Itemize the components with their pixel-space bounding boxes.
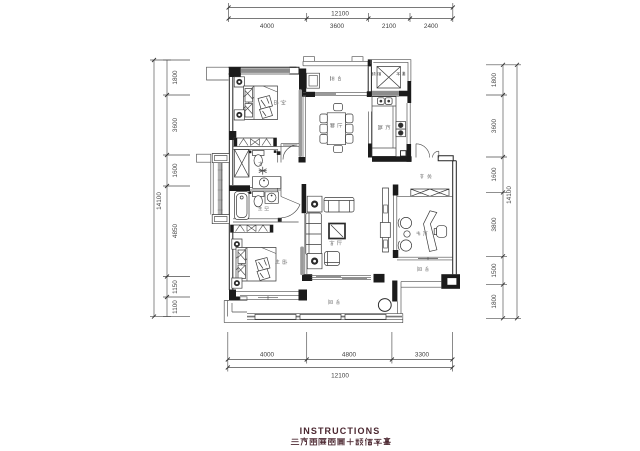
svg-text:1600: 1600	[491, 167, 498, 182]
svg-text:3300: 3300	[415, 352, 430, 359]
svg-text:1500: 1500	[491, 263, 498, 278]
svg-text:4850: 4850	[172, 223, 179, 238]
svg-text:1600: 1600	[172, 163, 179, 178]
svg-text:2400: 2400	[424, 23, 439, 30]
svg-text:3600: 3600	[491, 118, 498, 133]
svg-text:3600: 3600	[172, 117, 179, 132]
svg-text:12100: 12100	[331, 11, 349, 18]
svg-text:3600: 3600	[330, 23, 345, 30]
svg-text:12100: 12100	[331, 373, 349, 380]
svg-text:1100: 1100	[172, 300, 179, 314]
svg-text:3800: 3800	[491, 217, 498, 232]
svg-text:2100: 2100	[382, 23, 397, 30]
svg-text:14100: 14100	[506, 186, 513, 204]
svg-text:14100: 14100	[156, 192, 163, 210]
svg-text:1800: 1800	[491, 294, 498, 309]
svg-text:INSTRUCTIONS: INSTRUCTIONS	[300, 426, 381, 436]
svg-text:1800: 1800	[172, 70, 179, 85]
svg-text:4000: 4000	[260, 23, 275, 30]
svg-text:4000: 4000	[260, 352, 275, 359]
svg-text:1150: 1150	[172, 280, 179, 294]
svg-text:1800: 1800	[491, 72, 498, 87]
svg-text:4800: 4800	[342, 352, 357, 359]
